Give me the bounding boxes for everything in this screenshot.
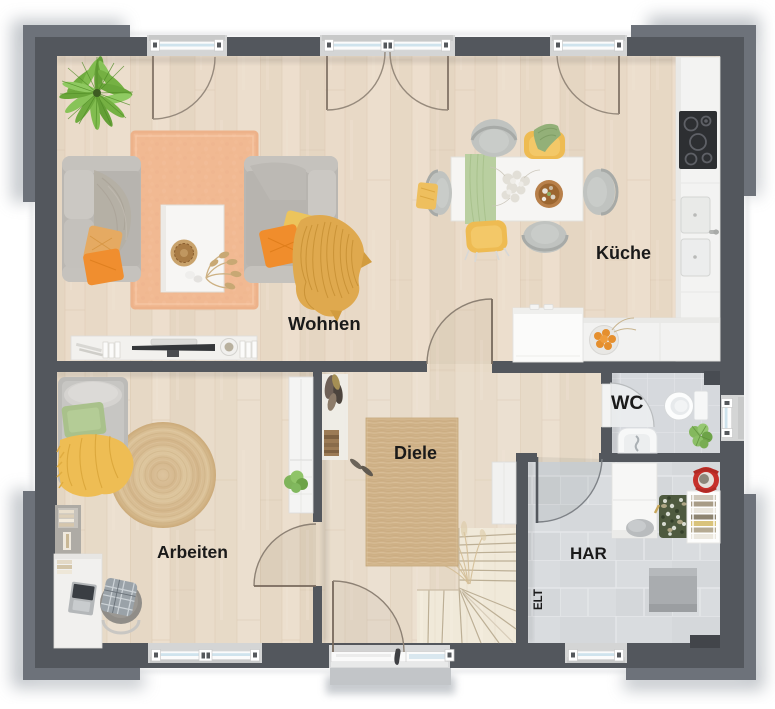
svg-text:ELT: ELT [533,589,545,610]
svg-text:WC: WC [611,392,644,414]
svg-text:HAR: HAR [570,544,607,563]
svg-text:Diele: Diele [394,443,437,463]
svg-text:Wohnen: Wohnen [288,313,361,334]
svg-text:Küche: Küche [596,243,651,263]
svg-text:Arbeiten: Arbeiten [157,542,228,562]
